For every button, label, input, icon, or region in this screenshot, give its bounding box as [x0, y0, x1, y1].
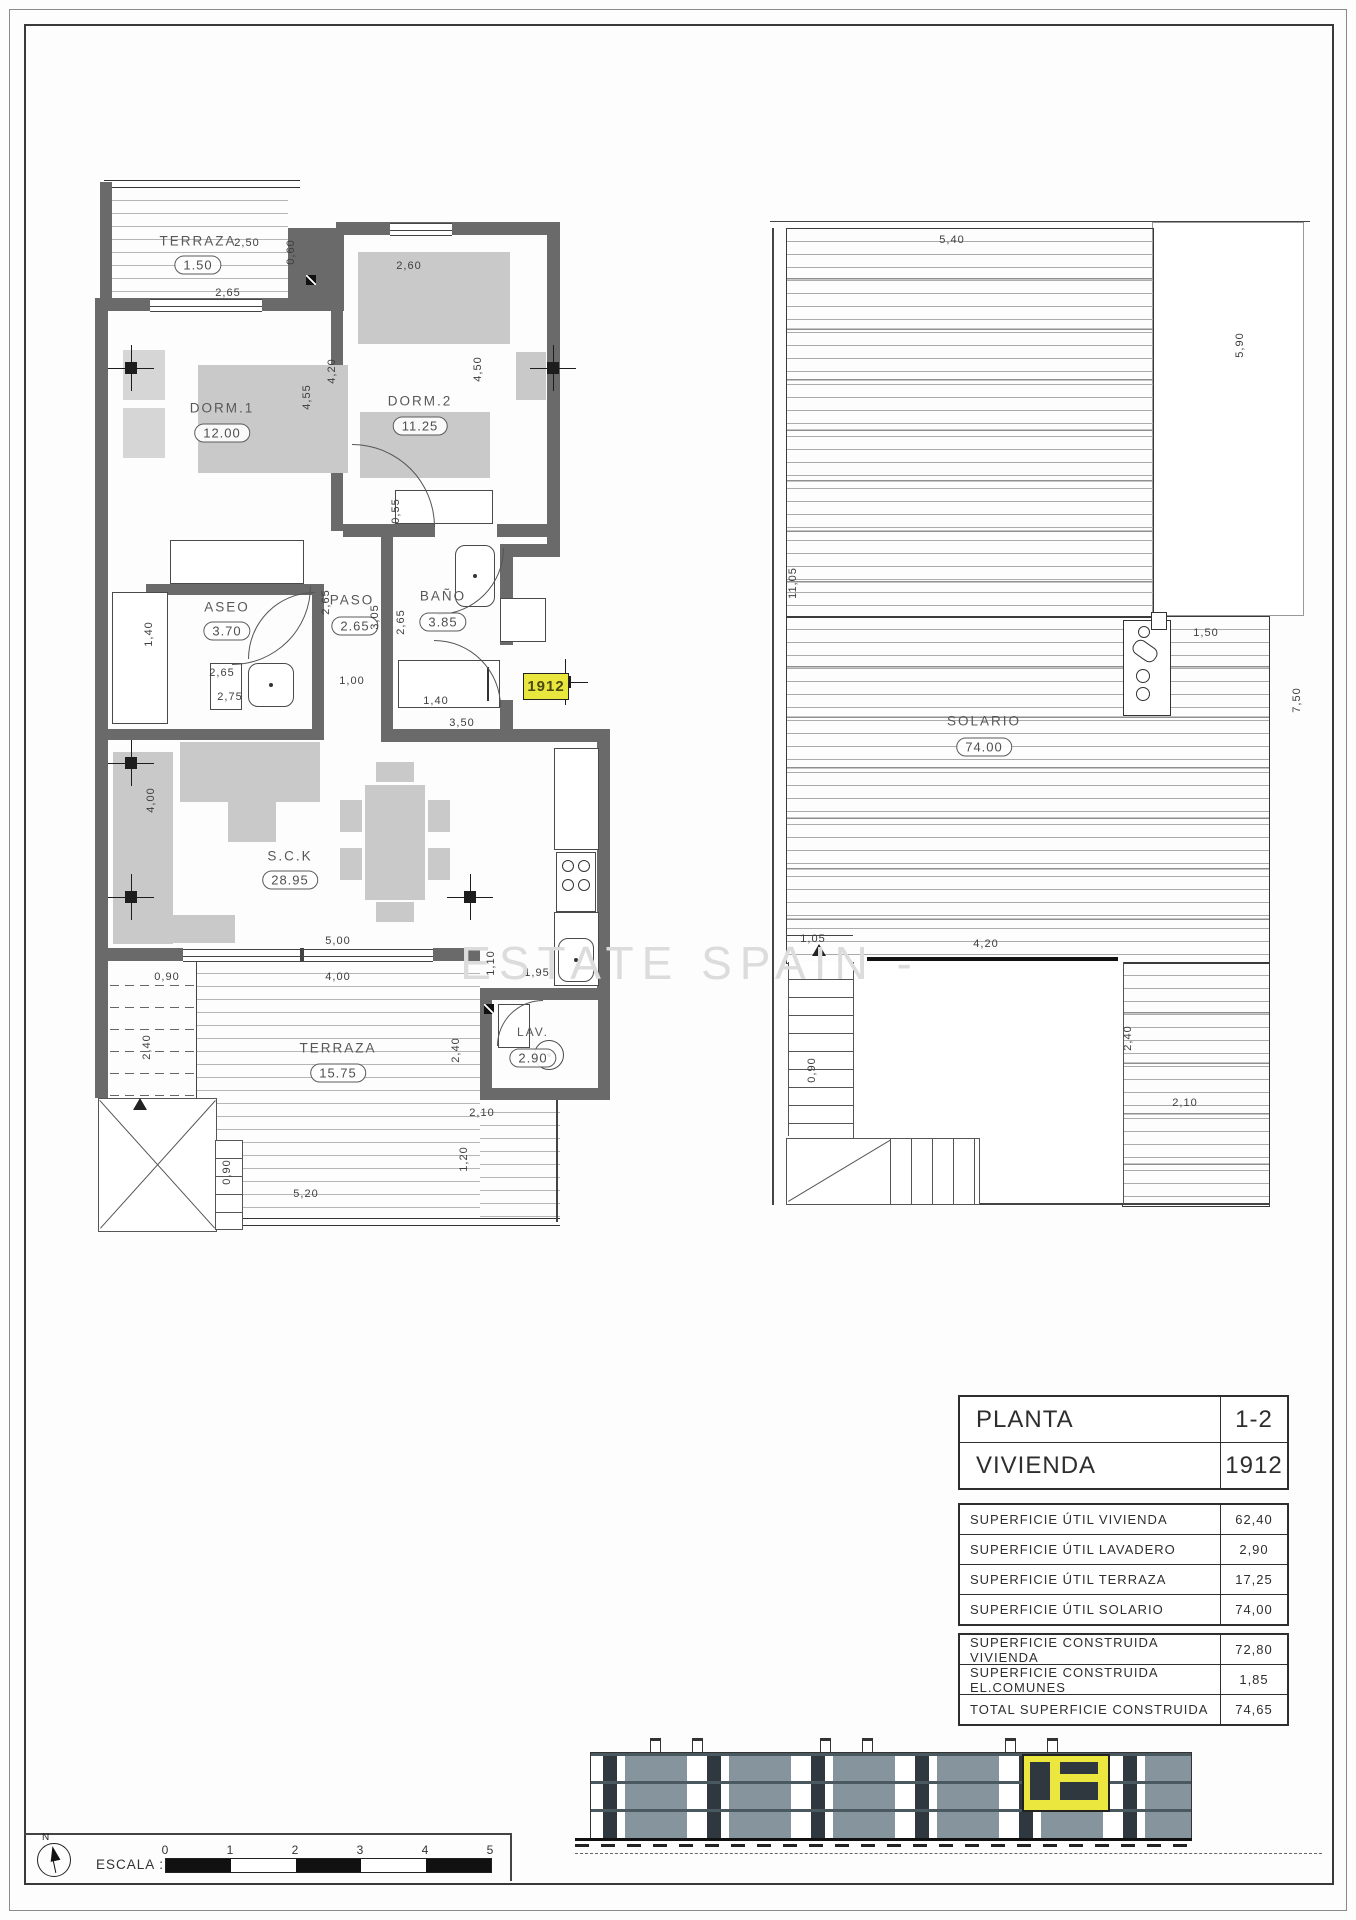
scale-tick: 1 [227, 1843, 234, 1857]
table-cell-value: 62,40 [1220, 1505, 1287, 1534]
wall [100, 182, 112, 311]
room-label: DORM.2 [388, 394, 453, 409]
strip-divider [510, 1833, 512, 1881]
dining-table [365, 785, 425, 900]
room-label: SOLARIO [947, 714, 1021, 729]
drain-icon [306, 275, 316, 285]
column-marker-icon [447, 874, 493, 920]
dimension: 2,60 [396, 260, 421, 272]
dimension: 1,00 [339, 675, 364, 687]
room-area: 1.50 [174, 256, 221, 275]
foundation-dashes [575, 1844, 1192, 1847]
strip-divider [24, 1833, 512, 1835]
dimension: 2,40 [450, 1037, 462, 1062]
table-cell-value: 1,85 [1220, 1665, 1287, 1694]
table-row: SUPERFICIE ÚTIL SOLARIO 74,00 [960, 1594, 1287, 1624]
table-row: PLANTA 1-2 [960, 1397, 1287, 1442]
built-area-table: SUPERFICIE CONSTRUIDA VIVIENDA 72,80 SUP… [958, 1633, 1289, 1726]
dimension: 4,00 [145, 787, 157, 812]
table-cell-label: SUPERFICIE CONSTRUIDA VIVIENDA [960, 1635, 1220, 1664]
dimension: 2,40 [141, 1034, 153, 1059]
stove-icon [556, 852, 596, 912]
dimension: 2,10 [1172, 1097, 1197, 1109]
wall [95, 948, 108, 1098]
scale-tick: 4 [422, 1843, 429, 1857]
room-area: 2.90 [509, 1049, 556, 1068]
chair [340, 800, 362, 832]
dimension: 5,20 [293, 1188, 318, 1200]
table-cell-label: SUPERFICIE ÚTIL VIVIENDA [960, 1505, 1220, 1534]
bed [358, 252, 510, 344]
dimension: 4,50 [472, 356, 484, 381]
table-row: TOTAL SUPERFICIE CONSTRUIDA 74,65 [960, 1694, 1287, 1724]
terrace-edge [556, 1100, 558, 1222]
room-label: TERRAZA [159, 234, 236, 249]
table-cell-label: SUPERFICIE ÚTIL TERRAZA [960, 1565, 1220, 1594]
scale-tick: 2 [292, 1843, 299, 1857]
room-area: 12.00 [194, 424, 250, 443]
table-row: SUPERFICIE CONSTRUIDA EL.COMUNES 1,85 [960, 1664, 1287, 1694]
dimension: 2,65 [395, 609, 407, 634]
roof-drain-box [1151, 612, 1167, 630]
dimension: 2,65 [215, 287, 240, 299]
wall [598, 1000, 610, 1095]
room-label: TERRAZA [299, 1041, 376, 1056]
terrace-railing [196, 1218, 560, 1226]
column-marker-icon [530, 345, 576, 391]
dimension: 2,65 [320, 589, 332, 614]
table-cell-label: TOTAL SUPERFICIE CONSTRUIDA [960, 1695, 1220, 1724]
useful-area-table: SUPERFICIE ÚTIL VIVIENDA 62,40 SUPERFICI… [958, 1503, 1289, 1626]
north-label: N [42, 1832, 49, 1843]
room-label: ASEO [204, 600, 250, 615]
dimension: 3,50 [449, 717, 474, 729]
dimension: 2,65 [209, 667, 234, 679]
dimension: 0,90 [221, 1159, 233, 1184]
info-table: PLANTA 1-2 VIVIENDA 1912 [958, 1395, 1289, 1490]
table-cell-value: 1912 [1220, 1443, 1287, 1488]
room-label: S.C.K [267, 849, 312, 864]
room-area: 74.00 [956, 738, 1012, 757]
scale-label: ESCALA : [96, 1857, 164, 1872]
dimension: 5,00 [325, 935, 350, 947]
table-row: SUPERFICIE ÚTIL TERRAZA 17,25 [960, 1564, 1287, 1594]
room-label: BAÑO [420, 589, 466, 604]
dimension: 2,50 [234, 237, 259, 249]
dimension: 1,40 [143, 621, 155, 646]
wall [480, 1088, 610, 1100]
stair-direction-arrow [133, 1098, 147, 1110]
dimension: 11,05 [787, 567, 799, 599]
chair [340, 848, 362, 880]
window [390, 223, 452, 236]
neighbor-solario-outline [1152, 222, 1304, 616]
table-cell-value: 74,00 [1220, 1595, 1287, 1624]
dimension: 0,90 [154, 971, 179, 983]
table-cell-label: SUPERFICIE ÚTIL SOLARIO [960, 1595, 1220, 1624]
nightstand [123, 408, 165, 458]
room-area: 3.85 [419, 613, 466, 632]
table-cell-label: SUPERFICIE CONSTRUIDA EL.COMUNES [960, 1665, 1220, 1694]
table-cell-value: 72,80 [1220, 1635, 1287, 1664]
table-cell-value: 1-2 [1220, 1397, 1287, 1442]
wall [480, 1000, 492, 1095]
dimension: 7,50 [1291, 687, 1303, 712]
table-cell-label: PLANTA [960, 1397, 1220, 1442]
chair [428, 800, 450, 832]
table-cell-label: SUPERFICIE ÚTIL LAVADERO [960, 1535, 1220, 1564]
scale-tick: 3 [357, 1843, 364, 1857]
column-marker-icon [108, 740, 154, 786]
dimension: 0,90 [806, 1057, 818, 1082]
table-row: SUPERFICIE CONSTRUIDA VIVIENDA 72,80 [960, 1635, 1287, 1664]
solario-deck-strip [1122, 962, 1270, 1207]
wall [108, 729, 312, 740]
room-area: 3.70 [203, 622, 250, 641]
dimension: 2,75 [217, 691, 242, 703]
scale-tick: 0 [162, 1843, 169, 1857]
room-area: 28.95 [262, 871, 318, 890]
column-marker-icon [108, 345, 154, 391]
dimension: 3,05 [369, 604, 381, 629]
dimension: 4,20 [326, 358, 338, 383]
solario-deck-main [786, 616, 1270, 964]
dimension: 4,20 [973, 938, 998, 950]
balcony-railing [104, 180, 300, 188]
tv-sideboard [145, 915, 235, 943]
dimension: 0,60 [285, 239, 297, 264]
wall [497, 524, 560, 537]
dimension: 2,10 [469, 1107, 494, 1119]
plan-left-edge [772, 228, 774, 1205]
room-area: 15.75 [310, 1064, 366, 1083]
dimension: 1,20 [458, 1146, 470, 1171]
dimension: 4,55 [301, 384, 313, 409]
table-cell-value: 2,90 [1220, 1535, 1287, 1564]
scale-bar [165, 1858, 492, 1873]
table-cell-value: 17,25 [1220, 1565, 1287, 1594]
dimension: 1,40 [423, 695, 448, 707]
stair-treads [890, 1138, 980, 1205]
table-cell-label: VIVIENDA [960, 1443, 1220, 1488]
table-row: SUPERFICIE ÚTIL VIVIENDA 62,40 [960, 1505, 1287, 1534]
wall [95, 298, 108, 948]
watermark: ESTATE SPAIN - [460, 936, 920, 990]
wall [381, 537, 393, 740]
room-area: 11.25 [393, 417, 448, 436]
table-cell-value: 74,65 [1220, 1695, 1287, 1724]
dimension: 1,50 [1193, 627, 1218, 639]
ground-line [575, 1838, 1192, 1841]
wall [381, 729, 610, 742]
chair [376, 762, 414, 782]
wall [500, 544, 560, 557]
drain-icon [484, 1004, 494, 1014]
table-row: SUPERFICIE ÚTIL LAVADERO 2,90 [960, 1534, 1287, 1564]
room-label: LAV. [517, 1025, 549, 1039]
wall [95, 948, 183, 961]
dimension: 4,00 [325, 971, 350, 983]
column-marker-icon [108, 874, 154, 920]
coffee-table [228, 770, 276, 842]
unit-number-badge: 1912 [523, 673, 569, 700]
window-mullion [300, 948, 304, 961]
dimension: 5,40 [939, 234, 964, 246]
north-arrow-icon [37, 1843, 71, 1877]
site-boundary-dashed [575, 1853, 1322, 1854]
solario-deck-upper [786, 228, 1154, 618]
solar-water-heater-icon [1123, 620, 1171, 716]
scale-tick: 5 [487, 1843, 494, 1857]
sink-icon [248, 663, 294, 707]
dimension: 0,55 [390, 498, 402, 523]
room-label: DORM.1 [190, 401, 255, 416]
dimension: 2,40 [1122, 1025, 1134, 1050]
drawing-sheet: TERRAZA 1.50 DORM.1 12.00 DORM.2 11.25 A… [0, 0, 1356, 1920]
dimension: 5,90 [1234, 332, 1246, 357]
chair [376, 902, 414, 922]
window [150, 299, 262, 312]
kitchen-counter [554, 748, 599, 850]
facade-floor-0 [591, 1809, 1191, 1840]
shower [112, 592, 168, 724]
wardrobe [170, 540, 304, 584]
table-row: VIVIENDA 1912 [960, 1442, 1287, 1488]
stair-treads [215, 1140, 243, 1230]
vanity [500, 598, 546, 642]
highlighted-unit-1912 [1022, 1754, 1110, 1812]
room-label: PASO [330, 593, 375, 608]
